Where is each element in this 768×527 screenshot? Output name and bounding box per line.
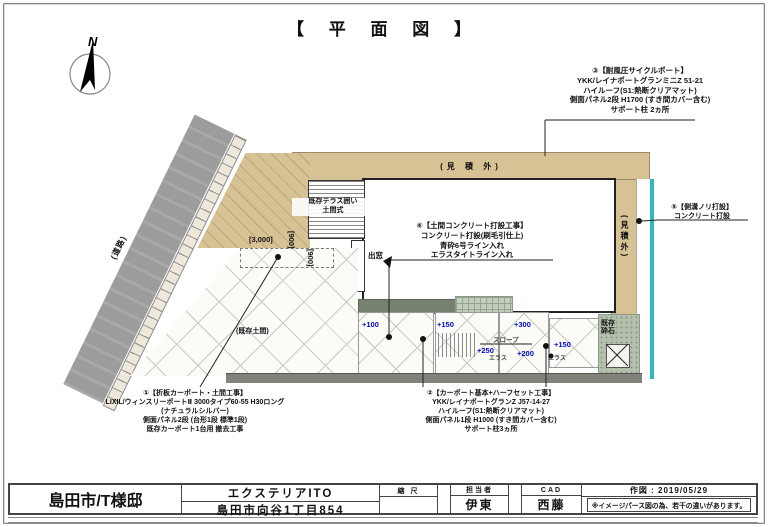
slope-label: スロープ xyxy=(493,334,519,344)
level-label: +200 xyxy=(517,349,534,358)
cad-label: CAD xyxy=(522,485,581,496)
staff-cell: 担当者 伊東 xyxy=(451,485,509,513)
scale-value xyxy=(380,497,437,513)
north-arrow-icon: N xyxy=(62,32,122,102)
elastite-label: エラス xyxy=(548,353,566,362)
level-label: +100 xyxy=(362,320,379,329)
client-name: 島田市/T様邸 xyxy=(10,485,182,513)
spacer-cell xyxy=(509,485,522,513)
staff-value: 伊東 xyxy=(451,496,508,513)
existing-gravel-label: 既存 砕石 xyxy=(600,320,616,336)
dimension-extent xyxy=(240,248,334,268)
bottom-retaining-strip xyxy=(226,373,642,383)
elastite-label: エラス xyxy=(489,353,507,362)
annotation-5-gutter: ⑤【側溝ノリ打設】 コンクリート打設 xyxy=(650,203,754,221)
scale-label: 縮 尺 xyxy=(380,485,437,497)
outside-estimate-top-label: (見 積 外) xyxy=(440,161,502,172)
cad-cell: CAD 西藤 xyxy=(522,485,582,513)
cad-value: 西藤 xyxy=(522,496,581,513)
dimension-900: [900] xyxy=(306,249,315,267)
catch-basin xyxy=(606,344,630,368)
outside-estimate-top-strip: (見 積 外) xyxy=(292,152,650,181)
disclaimer-note: ※イメージパース図の為、若干の違いがあります。 xyxy=(587,498,752,512)
note-row: ※イメージパース図の為、若干の違いがあります。 xyxy=(582,497,756,513)
level-label: +150 xyxy=(437,320,454,329)
outside-estimate-right-label: (見積外) xyxy=(619,215,630,259)
site-address: 島田市向谷1丁目854 xyxy=(182,502,379,518)
drawing-sheet: 【 平 面 図 】 N (道路) (見 積 外) (見積外) 既存テラス囲い 土… xyxy=(0,0,768,527)
date-note-cell: 作図 : 2019/05/29 ※イメージパース図の為、若干の違いがあります。 xyxy=(582,485,756,513)
company-name: エクステリアITO xyxy=(182,485,379,502)
scale-cell: 縮 尺 xyxy=(380,485,438,513)
bay-window-label: 出窓 xyxy=(368,250,383,261)
spacer-cell xyxy=(438,485,451,513)
slope-hatch xyxy=(438,333,478,357)
dimension-3000: [3,000] xyxy=(249,235,273,244)
company-cell: エクステリアITO 島田市向谷1丁目854 xyxy=(182,485,380,513)
level-label: +150 xyxy=(554,340,571,349)
existing-floor-label: (既存土間) xyxy=(236,326,269,336)
annotation-3-cycleport: ③【耐風圧サイクルポート】 YKK/レイナポートグランミニZ 51-21 ハイル… xyxy=(520,66,760,115)
staff-label: 担当者 xyxy=(451,485,508,496)
terrace-label: 既存テラス囲い 土間式 xyxy=(292,198,374,216)
title-block-rule xyxy=(8,517,758,523)
annotation-2-carport-half: ②【カーポート基本+ハーフセット工事】 YKK/レイナポートグランZ J57-1… xyxy=(396,389,586,434)
dimension-900: [900] xyxy=(287,231,296,249)
level-label: +300 xyxy=(514,320,531,329)
annotation-4-concrete: ④【土間コンクリート打設工事】 コンクリート打設(刷毛引仕上) 青砕6号ライン入… xyxy=(388,221,556,260)
drawn-date: 作図 : 2019/05/29 xyxy=(582,485,756,497)
title-block: 島田市/T様邸 エクステリアITO 島田市向谷1丁目854 縮 尺 担当者 伊東… xyxy=(8,483,758,515)
annotation-1-carport: ①【折板カーポート・土間工事】 LIXIL/ウィンスリーポートⅡ 3000タイプ… xyxy=(93,389,297,434)
